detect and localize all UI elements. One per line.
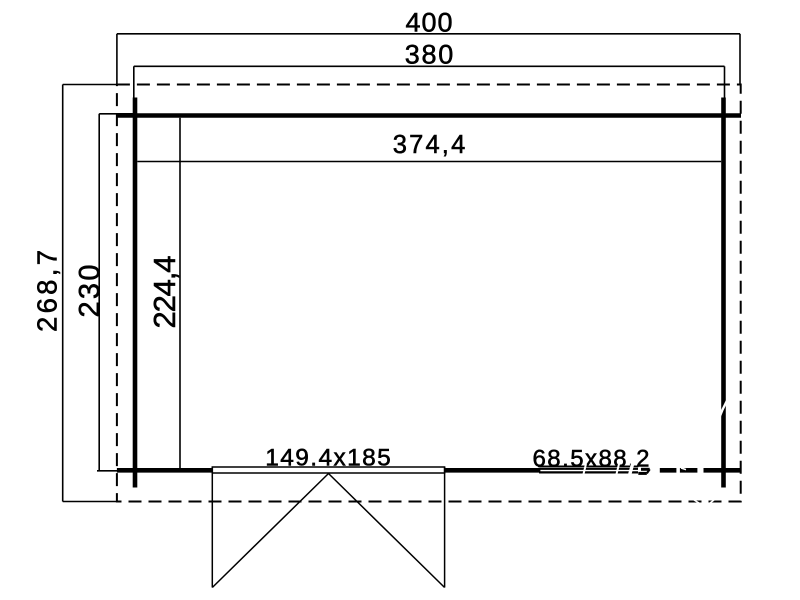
svg-text:400: 400 xyxy=(406,7,453,37)
svg-text:230: 230 xyxy=(74,265,106,318)
svg-text:374,4: 374,4 xyxy=(393,131,466,159)
svg-text:149.4x185: 149.4x185 xyxy=(265,444,391,471)
svg-text:380: 380 xyxy=(405,39,454,69)
svg-text:224,4: 224,4 xyxy=(147,256,182,329)
svg-text:268,7: 268,7 xyxy=(32,250,63,332)
